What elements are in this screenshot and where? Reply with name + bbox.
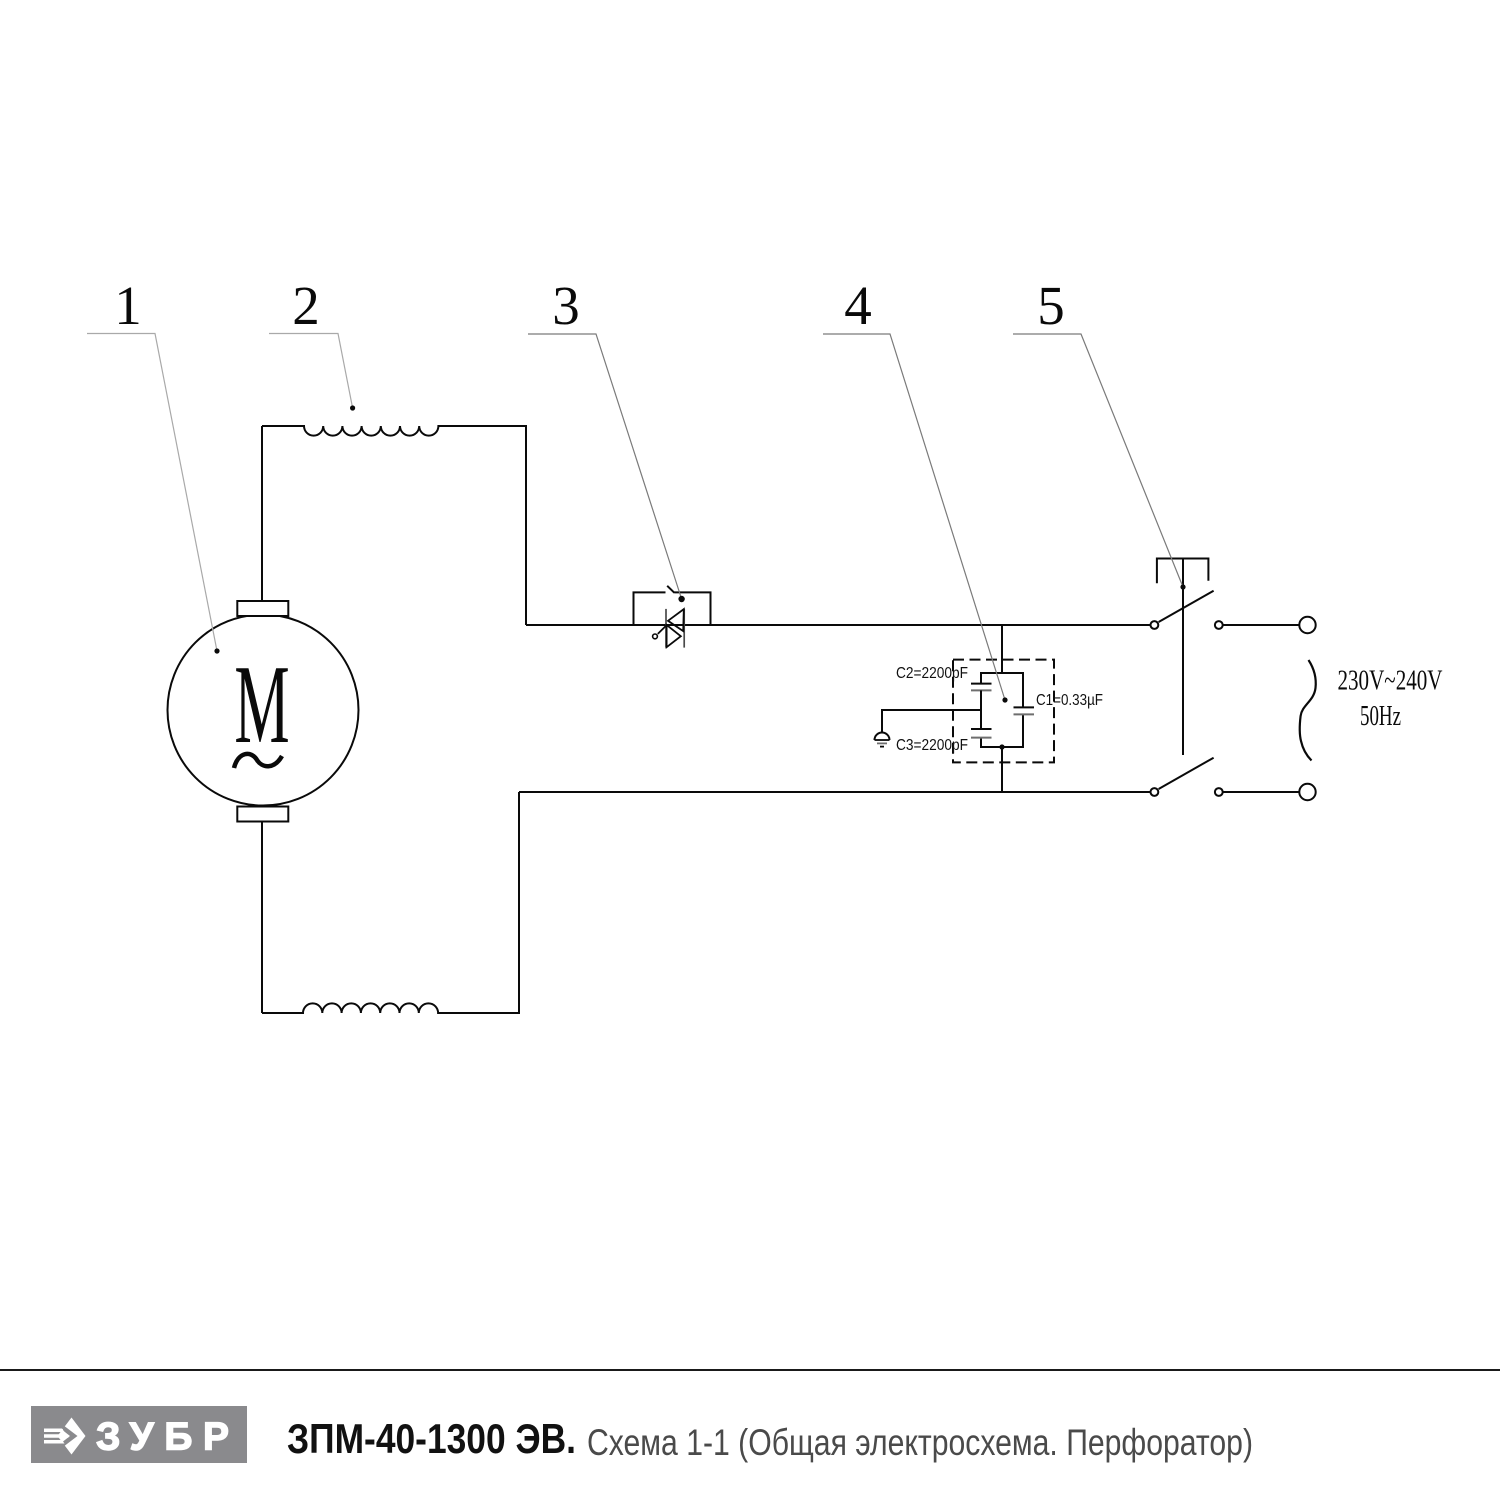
svg-text:50Hz: 50Hz (1360, 701, 1401, 732)
svg-text:ЗПМ-40-1300 ЭВ.: ЗПМ-40-1300 ЭВ. (287, 1415, 576, 1462)
svg-text:C2=2200pF: C2=2200pF (896, 665, 968, 682)
svg-text:C3=2200pF: C3=2200pF (896, 737, 968, 754)
svg-text:2: 2 (292, 275, 320, 336)
svg-text:230V~240V: 230V~240V (1338, 666, 1443, 697)
svg-text:C1=0.33µF: C1=0.33µF (1036, 692, 1103, 709)
svg-text:1: 1 (114, 275, 142, 336)
svg-text:M: M (234, 642, 289, 767)
svg-text:4: 4 (844, 275, 872, 336)
svg-text:5: 5 (1037, 275, 1065, 336)
svg-text:3: 3 (552, 275, 580, 336)
svg-text:Схема 1-1 (Общая электросхема.: Схема 1-1 (Общая электросхема. Перфорато… (587, 1422, 1253, 1463)
